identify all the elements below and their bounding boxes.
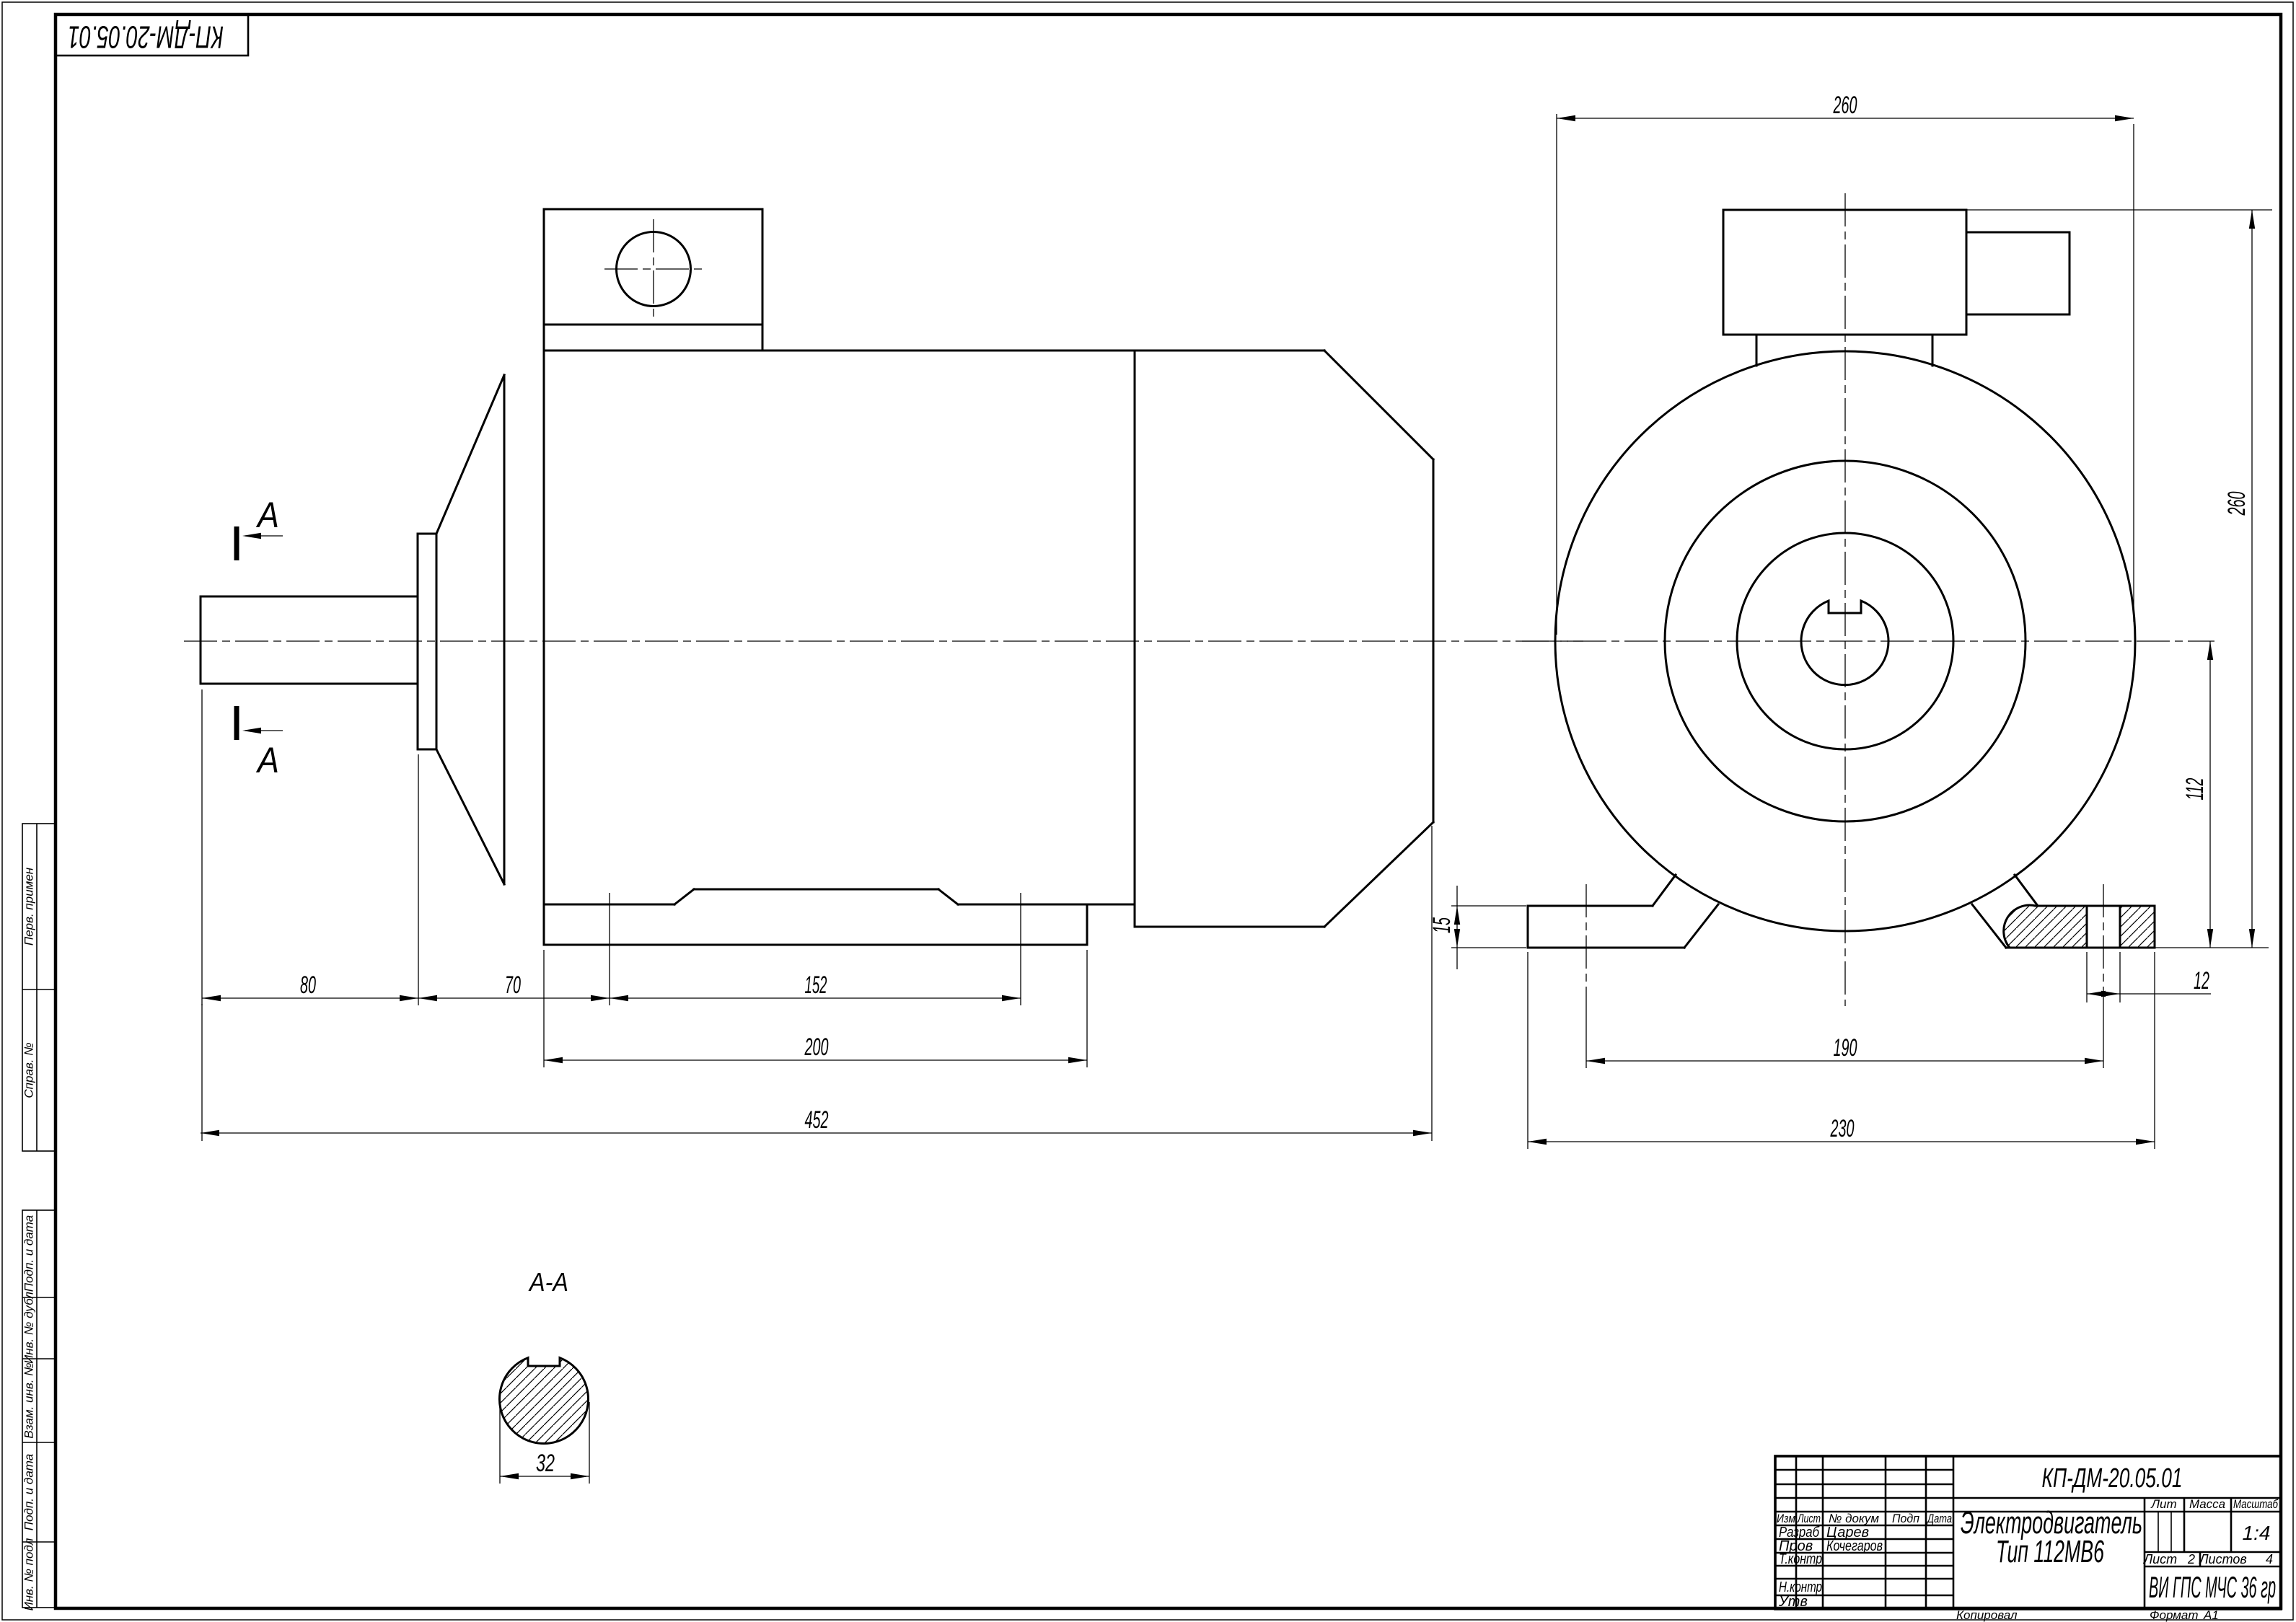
svg-text:4: 4 xyxy=(2266,1552,2273,1566)
svg-text:200: 200 xyxy=(804,1033,829,1061)
svg-text:Дата: Дата xyxy=(1926,1512,1952,1525)
svg-text:Формат: Формат xyxy=(2150,1608,2199,1622)
svg-text:ВИ ГПС МЧС 36 гр: ВИ ГПС МЧС 36 гр xyxy=(2149,1570,2276,1604)
svg-text:260: 260 xyxy=(2223,491,2251,516)
svg-text:Изм: Изм xyxy=(1777,1512,1795,1525)
svg-text:12: 12 xyxy=(2194,967,2209,995)
svg-text:1:4: 1:4 xyxy=(2243,1522,2271,1544)
svg-text:80: 80 xyxy=(300,971,316,999)
svg-text:А: А xyxy=(255,495,279,535)
svg-text:Лит: Лит xyxy=(2150,1497,2176,1511)
svg-text:190: 190 xyxy=(1834,1034,1857,1062)
svg-text:Масса: Масса xyxy=(2189,1497,2225,1511)
svg-text:Н.контр: Н.контр xyxy=(1779,1579,1822,1595)
svg-text:32: 32 xyxy=(536,1450,555,1477)
svg-text:Подп. и дата: Подп. и дата xyxy=(22,1215,35,1292)
svg-text:Подп. и дата: Подп. и дата xyxy=(22,1454,35,1530)
svg-text:Лист: Лист xyxy=(1797,1512,1821,1525)
svg-text:260: 260 xyxy=(1833,92,1857,119)
svg-text:КП-ДМ-20.05.01: КП-ДМ-20.05.01 xyxy=(68,19,224,54)
svg-text:Масштаб: Масштаб xyxy=(2233,1497,2279,1511)
svg-text:70: 70 xyxy=(505,971,521,999)
svg-text:Кочегаров: Кочегаров xyxy=(1826,1538,1883,1554)
svg-text:452: 452 xyxy=(805,1106,829,1134)
svg-text:Лист: Лист xyxy=(2143,1552,2177,1566)
svg-text:А: А xyxy=(255,740,279,780)
svg-text:15: 15 xyxy=(1428,917,1456,933)
svg-text:Взам. инв. №: Взам. инв. № xyxy=(22,1362,35,1438)
svg-text:Т.контр: Т.контр xyxy=(1779,1551,1822,1567)
svg-text:А-А: А-А xyxy=(528,1267,568,1297)
svg-text:Тип 112МВ6: Тип 112МВ6 xyxy=(1996,1534,2104,1569)
svg-text:Утв: Утв xyxy=(1778,1594,1808,1610)
svg-text:КП-ДМ-20.05.01: КП-ДМ-20.05.01 xyxy=(2042,1463,2183,1494)
svg-text:Инв. № подл: Инв. № подл xyxy=(22,1538,35,1610)
svg-text:Подп: Подп xyxy=(1892,1512,1920,1525)
svg-text:А1: А1 xyxy=(2203,1608,2219,1622)
svg-text:2: 2 xyxy=(2187,1552,2195,1566)
svg-text:Листов: Листов xyxy=(2199,1552,2247,1566)
svg-text:230: 230 xyxy=(1830,1115,1855,1142)
svg-text:Инв. № дубл: Инв. № дубл xyxy=(22,1292,35,1364)
svg-text:Копировал: Копировал xyxy=(1956,1608,2018,1622)
svg-text:Перв. примен: Перв. примен xyxy=(22,867,35,946)
svg-text:Справ. №: Справ. № xyxy=(22,1042,35,1098)
svg-text:152: 152 xyxy=(805,971,827,999)
svg-text:112: 112 xyxy=(2181,777,2209,800)
svg-text:№ докум: № докум xyxy=(1829,1512,1879,1525)
